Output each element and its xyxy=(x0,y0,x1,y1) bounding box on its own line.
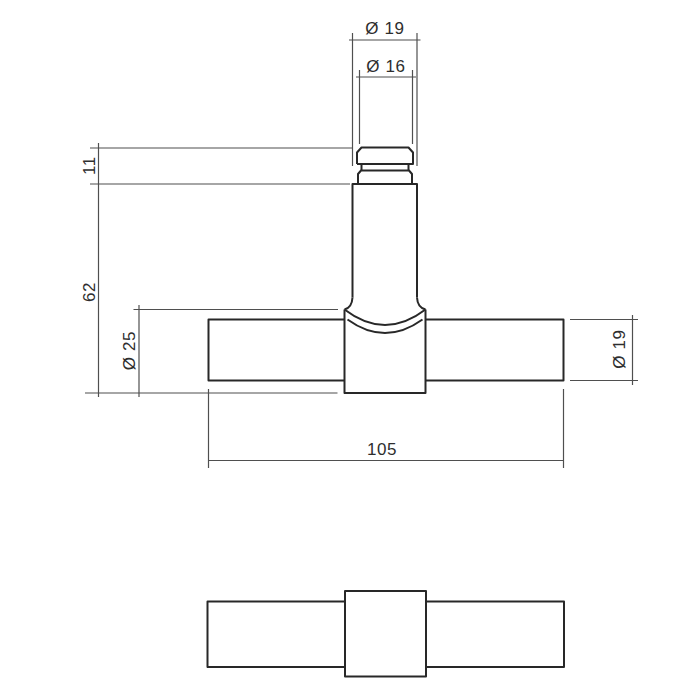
bottom-bar-left-outline xyxy=(208,602,346,668)
dimension-annotations: Ø 19 Ø 16 11 62 Ø 25 xyxy=(80,19,639,469)
bottom-view xyxy=(208,591,565,677)
front-base-outline xyxy=(345,310,426,394)
dim-bar-diameter-label: Ø 19 xyxy=(610,329,629,368)
front-bar-left-outline xyxy=(209,320,345,381)
t-bar-knob-drawing: Ø 19 Ø 16 11 62 Ø 25 xyxy=(0,0,700,700)
front-saddle-arc-outer xyxy=(345,310,426,326)
dim-cap-diameter-label: Ø 16 xyxy=(366,57,405,76)
bottom-bar-right-outline xyxy=(426,602,564,668)
dim-bar-length: 105 xyxy=(209,389,564,468)
bottom-base-outline xyxy=(345,591,426,677)
front-bar-right-outline xyxy=(426,320,564,381)
dim-cap-height-label: 11 xyxy=(80,156,99,175)
dim-stem-length-label: 62 xyxy=(80,282,99,302)
dim-center-diameter-label: Ø 25 xyxy=(120,331,139,370)
front-cap-outline xyxy=(357,148,413,165)
dim-bar-length-label: 105 xyxy=(367,440,397,459)
dim-stem-diameter-label: Ø 19 xyxy=(365,19,404,38)
front-fillet-right xyxy=(417,298,426,310)
front-stem-outline xyxy=(353,184,418,298)
technical-drawing-canvas: Ø 19 Ø 16 11 62 Ø 25 xyxy=(0,0,700,700)
front-collar-ring-outline xyxy=(358,171,412,185)
dim-cap-diameter: Ø 16 xyxy=(356,57,416,144)
front-fillet-left xyxy=(345,298,353,310)
front-saddle-arc-inner xyxy=(348,320,423,334)
dim-bar-diameter: Ø 19 xyxy=(570,315,638,385)
